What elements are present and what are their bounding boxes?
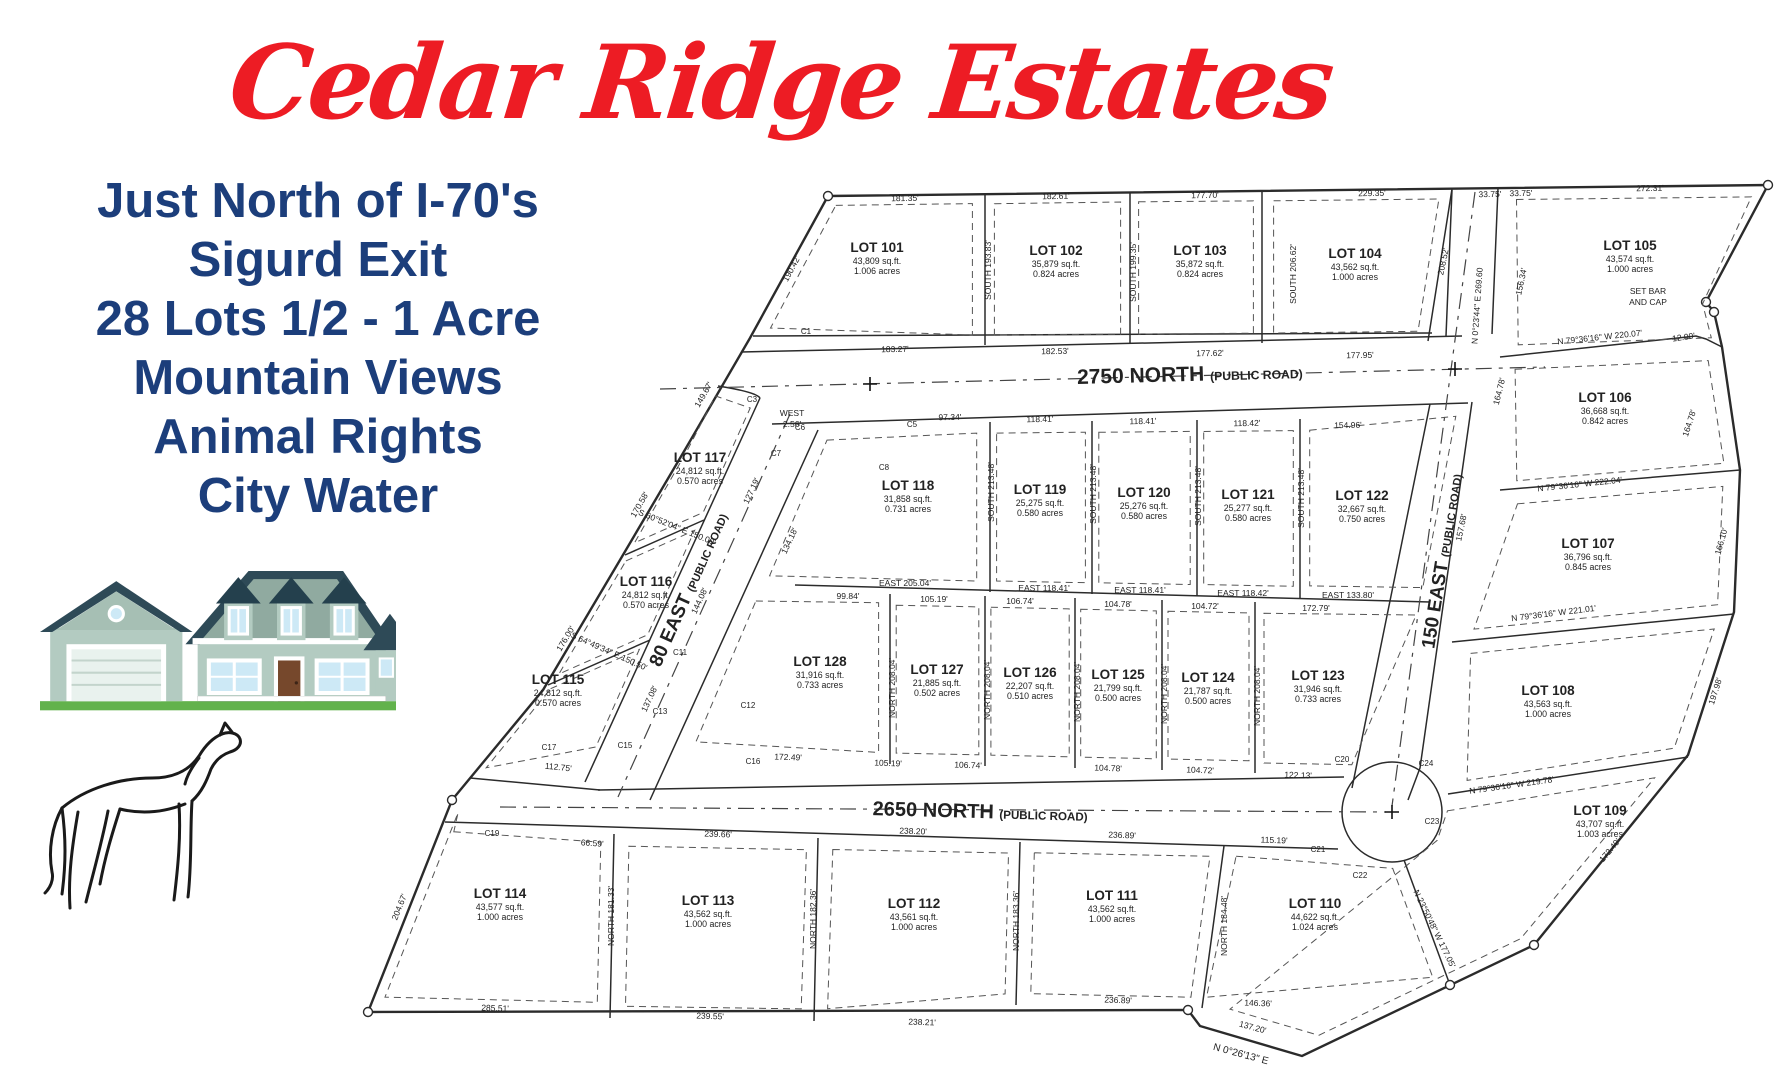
- corner-monument: [1764, 181, 1773, 190]
- dimension-label: SOUTH 213.48': [1088, 464, 1098, 524]
- lot-sqft: 35,879 sq.ft.: [1032, 259, 1080, 269]
- lot-name: LOT 104: [1328, 246, 1382, 261]
- intersection-mark: [1385, 805, 1399, 819]
- lot-name: LOT 108: [1521, 683, 1575, 698]
- lot-sqft: 43,809 sq.ft.: [853, 256, 901, 266]
- dimension-label: 238.21': [908, 1017, 936, 1028]
- lot-acres: 0.510 acres: [1007, 691, 1054, 701]
- dimension-label: 182.61': [1042, 191, 1070, 201]
- dimension-label: 104.78': [1094, 763, 1122, 774]
- intersection-mark: [863, 377, 877, 391]
- dimension-label: 99.84': [837, 591, 860, 601]
- dimension-label: S 64°49'34" E 150.50': [570, 630, 650, 673]
- corner-monument: [364, 1008, 373, 1017]
- road-label: 2650 NORTH (PUBLIC ROAD): [872, 798, 1088, 826]
- lot-acres: 0.842 acres: [1582, 416, 1629, 426]
- lot-name: LOT 120: [1117, 485, 1170, 500]
- corner-monument: [1710, 308, 1719, 317]
- lot-acres: 0.500 acres: [1095, 693, 1142, 703]
- lot-acres: 1.006 acres: [854, 266, 901, 276]
- lot-acres: 0.580 acres: [1225, 513, 1272, 523]
- dimension-label: NORTH 184.48': [1219, 896, 1229, 956]
- dimension-label: 164.78': [1491, 376, 1507, 406]
- lot-name: LOT 127: [910, 662, 963, 677]
- lot-name: LOT 109: [1573, 803, 1626, 818]
- lot-acres: 0.500 acres: [1185, 696, 1232, 706]
- dimension-label: 104.72': [1186, 765, 1214, 776]
- dimension-label: 33.75': [1478, 189, 1501, 199]
- lot-acres: 0.580 acres: [1017, 508, 1064, 518]
- dimension-label: C23: [1425, 817, 1440, 826]
- plat-boundary-line: [598, 777, 1344, 790]
- dimension-label: C12: [741, 701, 756, 710]
- lot-acres: 0.824 acres: [1033, 269, 1080, 279]
- lot-sqft: 24,812 sq.ft.: [534, 688, 582, 698]
- lot-sqft: 43,561 sq.ft.: [890, 912, 938, 922]
- lot-sqft: 24,812 sq.ft.: [676, 466, 724, 476]
- corner-monument: [1184, 1006, 1193, 1015]
- lot-sqft: 43,574 sq.ft.: [1606, 254, 1654, 264]
- dimension-label: 97.34': [938, 412, 961, 422]
- dimension-label: NORTH 208.04': [887, 658, 897, 718]
- dimension-label: C15: [618, 741, 633, 750]
- lot-acres: 0.731 acres: [885, 504, 932, 514]
- dimension-label: 104.78': [1104, 599, 1132, 609]
- lot-name: LOT 126: [1003, 665, 1057, 680]
- dimension-label: 137.20': [1238, 1019, 1268, 1036]
- dimension-label: 181.35': [891, 193, 919, 203]
- lot-name: LOT 105: [1603, 238, 1657, 253]
- dimension-label: 106.74': [1006, 596, 1034, 606]
- lot-name: LOT 124: [1181, 670, 1235, 685]
- dimension-label: 239.55': [696, 1011, 724, 1022]
- lot-sqft: 43,563 sq.ft.: [1524, 699, 1572, 709]
- plat-boundary-line: [1452, 614, 1734, 642]
- dimension-label: EAST 118.41': [1114, 585, 1166, 595]
- dimension-label: 177.62': [1196, 348, 1224, 358]
- lot-name: LOT 115: [532, 672, 585, 687]
- lot-setback-dashed: [770, 433, 977, 581]
- lot-acres: 1.000 acres: [1607, 264, 1654, 274]
- dimension-label: 183.27': [881, 344, 909, 354]
- dimension-label: N 79°36'16" W 222.04': [1537, 475, 1623, 494]
- lot-acres: 0.570 acres: [623, 600, 670, 610]
- lot-name: LOT 114: [474, 886, 527, 901]
- lot-acres: 0.502 acres: [914, 688, 961, 698]
- lot-name: LOT 101: [850, 240, 904, 255]
- lot-sqft: 22,207 sq.ft.: [1006, 681, 1054, 691]
- dimension-label: 172.49': [774, 752, 802, 763]
- dimension-label: 236.89': [1108, 830, 1136, 841]
- lot-name: LOT 121: [1221, 487, 1275, 502]
- lot-acres: 1.000 acres: [477, 912, 524, 922]
- dimension-label: EAST 118.41': [1018, 583, 1070, 593]
- dimension-label: N 0°26'13" E: [1212, 1042, 1270, 1067]
- lot-sqft: 32,667 sq.ft.: [1338, 504, 1386, 514]
- plat-boundary-line: [445, 822, 1338, 849]
- plat-map: LOT 10143,809 sq.ft.1.006 acresLOT 10235…: [0, 0, 1792, 1075]
- lot-acres: 0.733 acres: [797, 680, 844, 690]
- lot-sqft: 35,872 sq.ft.: [1176, 259, 1224, 269]
- road-label: 150 EAST (PUBLIC ROAD): [1418, 472, 1466, 650]
- dimension-label: C17: [542, 743, 557, 752]
- lot-sqft: 25,275 sq.ft.: [1016, 498, 1064, 508]
- corner-monument: [1530, 941, 1539, 950]
- dimension-label: N 79°36'16" W 219.78': [1469, 774, 1555, 796]
- dimension-label: WEST: [780, 408, 805, 418]
- dimension-label: 12.90': [1672, 330, 1696, 343]
- road-centerline: [1392, 192, 1475, 806]
- dimension-label: C7: [771, 449, 782, 458]
- plat-boundary-line: [585, 398, 760, 782]
- lot-acres: 1.000 acres: [685, 919, 732, 929]
- dimension-label: C20: [1335, 755, 1350, 764]
- lot-sqft: 21,787 sq.ft.: [1184, 686, 1232, 696]
- dimension-label: C13: [653, 707, 668, 716]
- dimension-label: C1: [801, 327, 812, 336]
- dimension-label: 106.74': [954, 760, 982, 771]
- dimension-label: 134.18': [779, 526, 800, 556]
- dimension-label: NORTH 208.04': [1159, 664, 1169, 724]
- lot-name: LOT 117: [674, 450, 727, 465]
- dimension-label: C22: [1353, 871, 1368, 880]
- lot-acres: 0.580 acres: [1121, 511, 1168, 521]
- lot-name: LOT 107: [1561, 536, 1614, 551]
- dimension-label: N 79°36'16" W 221.01': [1511, 603, 1597, 623]
- lot-acres: 0.845 acres: [1565, 562, 1612, 572]
- dimension-label: SOUTH 193.83': [983, 240, 993, 300]
- dimension-label: C19: [485, 829, 500, 838]
- dimension-label: 118.41': [1129, 416, 1157, 426]
- lot-name: LOT 113: [682, 893, 735, 908]
- dimension-label: 118.41': [1026, 414, 1054, 424]
- dimension-label: C11: [673, 648, 688, 657]
- dimension-label: 182.53': [1041, 346, 1069, 356]
- lot-name: LOT 112: [888, 896, 941, 911]
- dimension-label: C16: [746, 757, 761, 766]
- lot-sqft: 21,885 sq.ft.: [913, 678, 961, 688]
- dimension-label: 146.36': [1244, 998, 1272, 1009]
- lot-name: LOT 110: [1289, 896, 1342, 911]
- dimension-label: 236.89': [1104, 995, 1132, 1006]
- dimension-label: 172.79': [1302, 603, 1330, 613]
- dimension-label: 285.51': [481, 1003, 509, 1014]
- lot-acres: 0.733 acres: [1295, 694, 1342, 704]
- plat-boundary-line: [470, 778, 600, 790]
- lot-sqft: 36,796 sq.ft.: [1564, 552, 1612, 562]
- dimension-label: NORTH 181.33': [606, 886, 616, 946]
- dimension-label: 122.13': [1284, 770, 1312, 781]
- corner-monument: [1446, 981, 1455, 990]
- dimension-label: 172.49': [1597, 836, 1623, 864]
- dimension-label: EAST 118.42': [1217, 588, 1269, 598]
- dimension-label: EAST 133.80': [1322, 590, 1374, 600]
- dimension-label: C8: [879, 463, 890, 472]
- lot-name: LOT 116: [620, 574, 673, 589]
- dimension-label: 177.95': [1346, 350, 1374, 360]
- corner-monument: [448, 796, 457, 805]
- dimension-label: 164.78': [1680, 408, 1698, 438]
- lot-acres: 1.000 acres: [1332, 272, 1379, 282]
- dimension-label: C6: [795, 423, 806, 432]
- dimension-label: SOUTH 206.62': [1288, 244, 1298, 304]
- dimension-label: NORTH 208.04': [1252, 666, 1262, 726]
- dimension-label: 166.10': [1713, 526, 1730, 556]
- lot-sqft: 31,858 sq.ft.: [884, 494, 932, 504]
- dimension-label: NORTH 182.36': [808, 889, 818, 949]
- dimension-label: 190.42': [780, 254, 802, 283]
- dimension-label: SOUTH 213.48': [1193, 466, 1203, 526]
- dimension-label: 105.19': [874, 758, 902, 769]
- lot-acres: 0.570 acres: [677, 476, 724, 486]
- lot-acres: 1.000 acres: [1525, 709, 1572, 719]
- dimension-label: N 0°23'44" E 269.60: [1469, 267, 1484, 344]
- dimension-label: 66.59': [580, 837, 604, 849]
- lot-sqft: 43,577 sq.ft.: [476, 902, 524, 912]
- lot-name: LOT 111: [1086, 888, 1138, 903]
- corner-monument: [824, 192, 833, 201]
- dimension-label: 238.20': [899, 826, 927, 837]
- lot-setback-dashed: [1031, 853, 1210, 997]
- lot-sqft: 25,276 sq.ft.: [1120, 501, 1168, 511]
- lot-acres: 1.024 acres: [1292, 922, 1339, 932]
- lot-name: LOT 125: [1091, 667, 1145, 682]
- lot-sqft: 44,622 sq.ft.: [1291, 912, 1339, 922]
- dimension-label: EAST 205.04': [879, 578, 931, 588]
- dimension-label: NORTH 208.04': [1072, 662, 1082, 722]
- dimension-label: 156.34': [1513, 266, 1529, 295]
- dimension-label: AND CAP: [1629, 297, 1667, 307]
- lot-name: LOT 102: [1029, 243, 1082, 258]
- lot-name: LOT 128: [793, 654, 847, 669]
- dimension-label: NORTH 208.04': [982, 660, 992, 720]
- dimension-label: 272.31': [1636, 183, 1664, 193]
- lot-name: LOT 103: [1173, 243, 1227, 258]
- lot-name: LOT 123: [1291, 668, 1345, 683]
- dimension-label: SET BAR: [1630, 286, 1666, 296]
- dimension-label: 177.70': [1191, 190, 1219, 200]
- lot-sqft: 24,812 sq.ft.: [622, 590, 670, 600]
- dimension-label: S 60°52'04" E 150.00': [637, 507, 718, 547]
- lot-setback-dashed: [696, 601, 879, 752]
- lot-sqft: 31,916 sq.ft.: [796, 670, 844, 680]
- dimension-label: SOUTH 213.48': [1296, 468, 1306, 528]
- lot-acres: 0.824 acres: [1177, 269, 1224, 279]
- lot-acres: 1.003 acres: [1577, 829, 1624, 839]
- road-label: 2750 NORTH (PUBLIC ROAD): [1077, 360, 1303, 389]
- dimension-label: C24: [1419, 759, 1434, 768]
- plat-boundary-line: [753, 333, 1432, 336]
- dimension-label: C5: [907, 420, 918, 429]
- dimension-label: SOUTH 199.35': [1128, 242, 1138, 302]
- lot-name: LOT 122: [1335, 488, 1388, 503]
- lot-sqft: 43,562 sq.ft.: [684, 909, 732, 919]
- lot-name: LOT 106: [1578, 390, 1632, 405]
- lot-sqft: 43,562 sq.ft.: [1331, 262, 1379, 272]
- dimension-label: 239.66': [704, 829, 732, 840]
- dimension-label: SOUTH 213.48': [986, 462, 996, 522]
- lot-acres: 1.000 acres: [1089, 914, 1136, 924]
- dimension-label: C3: [747, 395, 758, 404]
- dimension-label: 229.35': [1358, 188, 1386, 198]
- lot-sqft: 36,668 sq.ft.: [1581, 406, 1629, 416]
- dimension-label: 127.19': [741, 476, 762, 506]
- dimension-label: 118.42': [1233, 418, 1261, 428]
- dimension-label: N 23°50'48" W 177.05': [1412, 888, 1459, 969]
- dimension-label: 33.75': [1509, 188, 1532, 198]
- dimension-label: 154.96': [1334, 420, 1362, 430]
- dimension-label: 105.19': [920, 594, 948, 604]
- dimension-label: NORTH 183.36': [1011, 891, 1021, 951]
- lot-acres: 0.750 acres: [1339, 514, 1386, 524]
- lot-sqft: 43,707 sq.ft.: [1576, 819, 1624, 829]
- lot-acres: 1.000 acres: [891, 922, 938, 932]
- lot-sqft: 21,799 sq.ft.: [1094, 683, 1142, 693]
- lot-name: LOT 118: [882, 478, 935, 493]
- lot-name: LOT 119: [1014, 482, 1067, 497]
- lot-sqft: 43,562 sq.ft.: [1088, 904, 1136, 914]
- lot-acres: 0.570 acres: [535, 698, 582, 708]
- dimension-label: C21: [1311, 845, 1326, 854]
- lot-setback-dashed: [1467, 629, 1714, 780]
- plat-boundary-line: [772, 403, 1468, 424]
- dimension-label: 115.19': [1260, 835, 1288, 846]
- lot-sqft: 31,946 sq.ft.: [1294, 684, 1342, 694]
- dimension-label: 104.72': [1191, 601, 1219, 611]
- dimension-label: 112.75': [544, 761, 572, 774]
- lot-sqft: 25,277 sq.ft.: [1224, 503, 1272, 513]
